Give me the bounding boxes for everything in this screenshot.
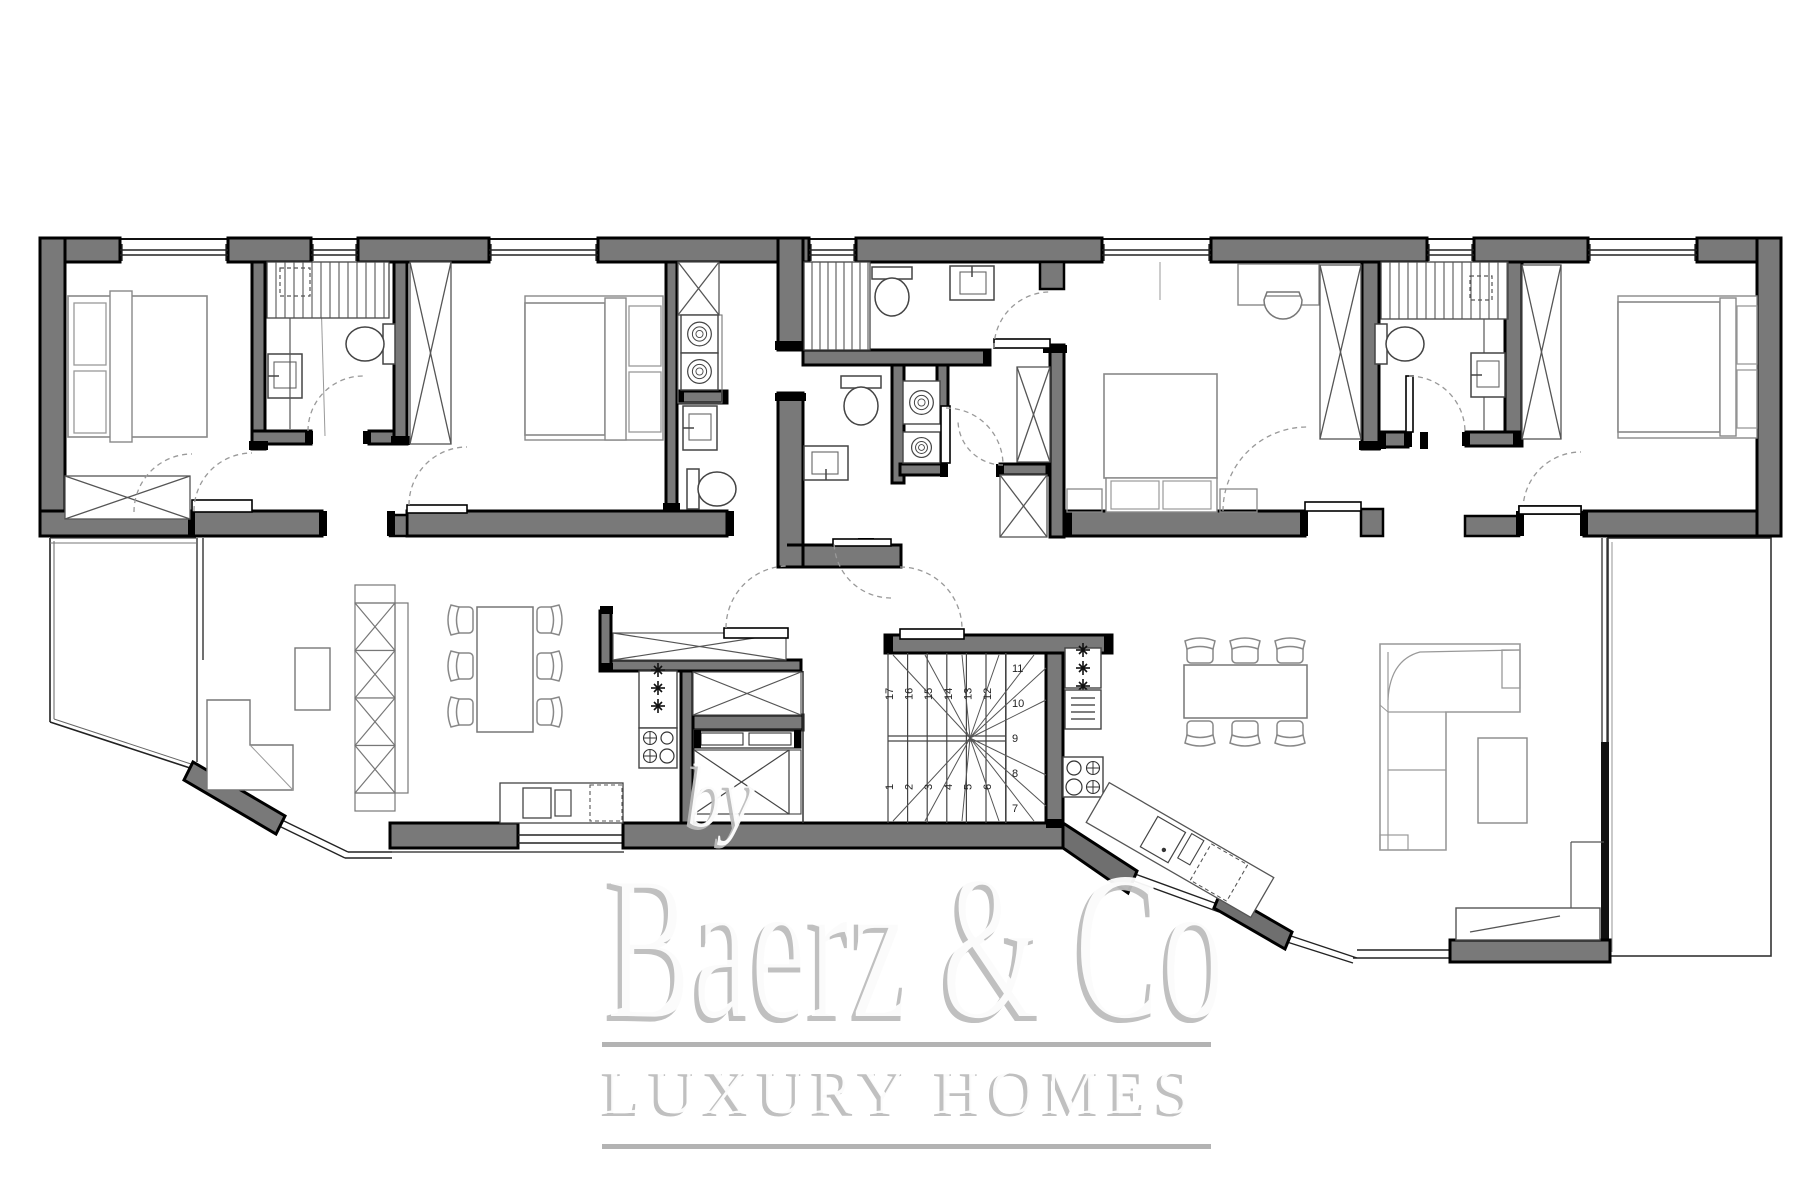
svg-text:2: 2: [904, 784, 916, 790]
svg-text:LUXURY HOMES: LUXURY HOMES: [604, 1056, 1212, 1127]
svg-text:8: 8: [1012, 768, 1018, 780]
svg-text:13: 13: [962, 688, 974, 700]
svg-text:9: 9: [1012, 733, 1018, 745]
svg-text:5: 5: [962, 784, 974, 790]
svg-text:7: 7: [1012, 803, 1018, 815]
svg-text:16: 16: [904, 688, 916, 700]
svg-text:11: 11: [1012, 663, 1023, 675]
svg-text:10: 10: [1012, 698, 1024, 710]
svg-text:12: 12: [982, 688, 994, 700]
svg-text:6: 6: [982, 784, 994, 790]
svg-text:17: 17: [884, 688, 896, 700]
svg-text:1: 1: [884, 784, 896, 790]
svg-text:3: 3: [923, 784, 935, 790]
svg-text:Baerz & Co: Baerz & Co: [607, 828, 1227, 1061]
svg-text:15: 15: [923, 688, 935, 700]
svg-text:4: 4: [943, 784, 955, 790]
svg-text:14: 14: [943, 688, 955, 700]
